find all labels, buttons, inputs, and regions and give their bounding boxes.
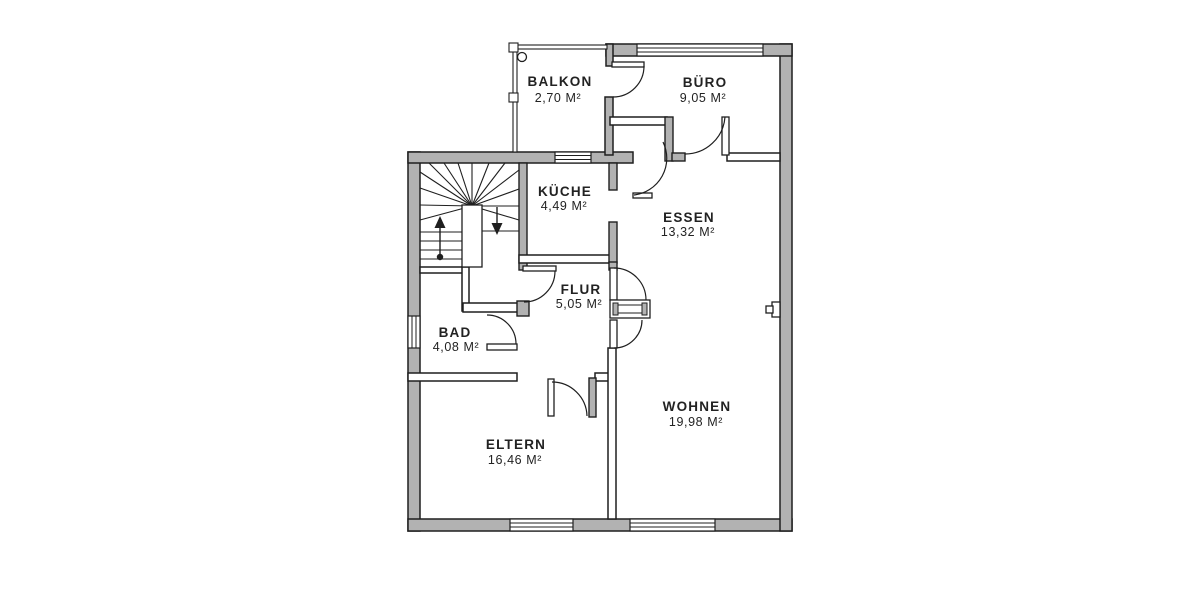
door-essen-buero: [685, 117, 729, 155]
door-essen-entry: [633, 142, 667, 198]
room-label-bad: BAD: [439, 325, 472, 340]
staircase: [420, 163, 519, 267]
room-label-flur: FLUR: [561, 282, 602, 297]
wall: [608, 348, 616, 519]
railing-post: [509, 93, 518, 102]
wall: [609, 222, 617, 263]
door-balkon-buero: [612, 62, 644, 97]
interior-walls: [408, 117, 780, 519]
room-label-wohnen: WOHNEN: [663, 399, 732, 414]
window: [555, 152, 591, 163]
room-label-kueche: KÜCHE: [538, 184, 592, 199]
room-area-buero: 9,05 M²: [680, 91, 727, 105]
window: [510, 519, 573, 531]
window: [637, 44, 763, 56]
wall: [610, 117, 667, 125]
wall: [408, 519, 792, 531]
door-flur-wohnen: [610, 320, 642, 348]
room-area-balkon: 2,70 M²: [535, 91, 582, 105]
wall: [727, 153, 780, 161]
wall: [517, 301, 529, 316]
room-labels: BALKON 2,70 M² BÜRO 9,05 M² KÜCHE 4,49 M…: [433, 74, 732, 467]
wall: [672, 153, 685, 161]
window: [408, 316, 420, 348]
wall: [589, 378, 596, 417]
shaft-symbol: [610, 300, 650, 318]
floor-plan-page: BALKON 2,70 M² BÜRO 9,05 M² KÜCHE 4,49 M…: [0, 0, 1200, 600]
door-bad: [487, 315, 517, 350]
floor-plan-drawing: BALKON 2,70 M² BÜRO 9,05 M² KÜCHE 4,49 M…: [0, 0, 1200, 600]
room-label-essen: ESSEN: [663, 210, 715, 225]
wall: [463, 303, 520, 312]
door-flur-essen: [610, 268, 646, 300]
downpipe-icon: [518, 53, 527, 62]
wall: [420, 267, 466, 273]
room-area-essen: 13,32 M²: [661, 225, 715, 239]
wall-connection-symbol: [766, 302, 780, 317]
room-area-kueche: 4,49 M²: [541, 199, 588, 213]
room-area-flur: 5,05 M²: [556, 297, 603, 311]
room-label-buero: BÜRO: [683, 75, 728, 90]
wall: [780, 44, 792, 531]
room-area-bad: 4,08 M²: [433, 340, 480, 354]
wall: [519, 163, 527, 270]
railing-post: [509, 43, 518, 52]
door-eltern: [548, 379, 587, 416]
window: [630, 519, 715, 531]
wall: [605, 97, 613, 155]
wall: [609, 163, 617, 190]
wall: [408, 152, 633, 163]
room-label-balkon: BALKON: [528, 74, 593, 89]
door-treppe-flur: [523, 266, 556, 302]
wall: [408, 373, 517, 381]
room-area-wohnen: 19,98 M²: [669, 415, 723, 429]
room-label-eltern: ELTERN: [486, 437, 546, 452]
wall: [519, 255, 616, 263]
room-area-eltern: 16,46 M²: [488, 453, 542, 467]
